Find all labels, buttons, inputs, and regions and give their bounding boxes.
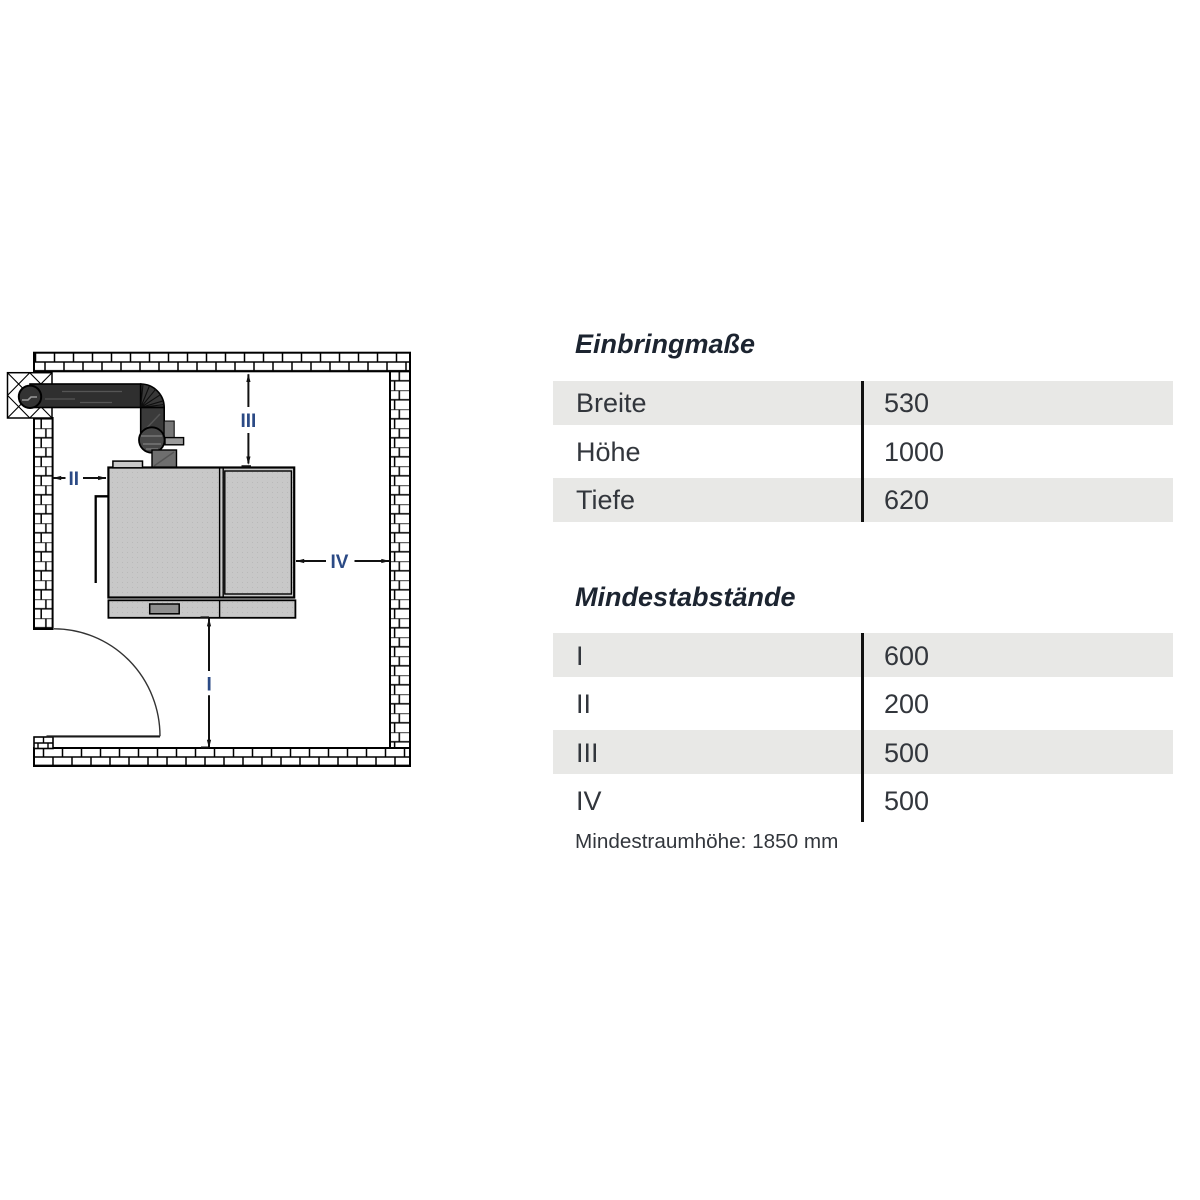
svg-text:II: II bbox=[69, 469, 80, 490]
svg-text:I: I bbox=[207, 675, 212, 696]
svg-text:IV: IV bbox=[331, 552, 349, 573]
svg-text:III: III bbox=[241, 411, 257, 432]
